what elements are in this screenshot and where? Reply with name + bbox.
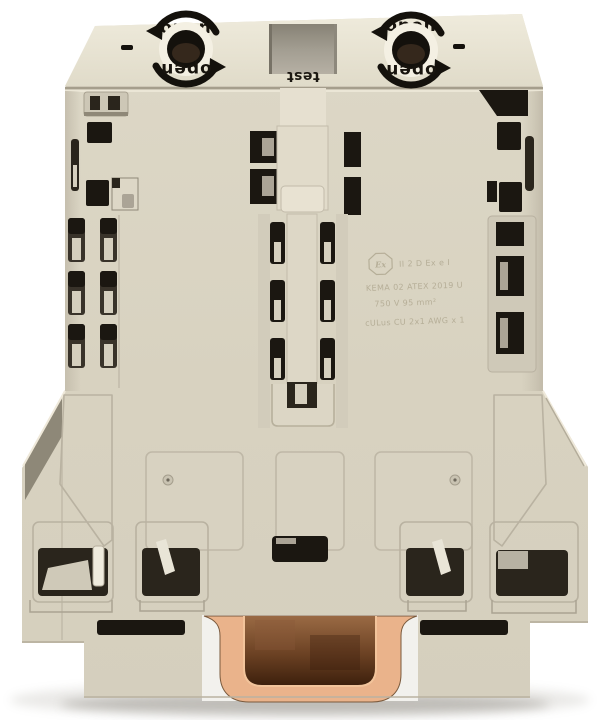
rail-side-channel: [336, 214, 348, 428]
copper-mottle: [255, 620, 295, 650]
open-label-bottom-right: open: [385, 60, 436, 80]
slot-opening: [497, 122, 521, 150]
slot-opening: [499, 182, 522, 212]
open-label-bottom-left: open: [160, 59, 211, 79]
test-label: test: [286, 68, 319, 84]
latch-pocket-notch: [112, 178, 120, 188]
terminal-block-photo: open open open open test: [0, 0, 606, 720]
rail-slot: [344, 132, 361, 167]
ladder-pin: [500, 262, 508, 290]
clip-notch: [108, 96, 120, 110]
latch-pin: [93, 546, 104, 586]
right-slot-ladder: [488, 216, 536, 372]
latch-pin: [122, 194, 134, 208]
side-slot: [525, 136, 534, 191]
rail-slot: [344, 177, 361, 215]
foot-panel: [146, 452, 243, 550]
product-photo: open open open open test: [0, 0, 606, 720]
center-foot-slot-bevel: [276, 538, 296, 544]
foot-slot: [420, 620, 508, 635]
panel-dimple-dot: [453, 478, 456, 481]
foot-slot: [97, 620, 185, 635]
clip-notch: [90, 96, 100, 110]
slot-opening: [487, 181, 497, 202]
ladder-pin: [500, 318, 508, 348]
clip-shadow: [84, 112, 128, 116]
test-recess-edge: [334, 24, 337, 74]
latch-block: [498, 551, 528, 569]
foot-panel: [375, 452, 472, 550]
marking-line-1: II 2 D Ex e I: [399, 258, 450, 269]
panel-dimple-dot: [166, 478, 169, 481]
din-rail-contact: [202, 615, 418, 702]
slot-opening: [86, 180, 109, 206]
slot-opening: [87, 122, 112, 143]
latch-recess: [406, 548, 464, 596]
rail-slot-step: [262, 176, 274, 196]
photo-canvas: open open open open test: [0, 0, 606, 720]
side-slot-pin: [73, 165, 77, 187]
foot-panel: [276, 452, 344, 550]
rail-end-pin: [295, 384, 307, 404]
rail-block-foot: [281, 186, 324, 212]
atex-ex-symbol: Ex: [374, 259, 386, 269]
screw-alignment-dash: [121, 45, 133, 50]
center-rail: [250, 88, 361, 428]
test-recess-edge: [269, 24, 272, 74]
screw-alignment-dash: [453, 44, 465, 49]
rail-slot-step: [262, 138, 274, 156]
ladder-hole: [496, 222, 524, 246]
rail-side-channel: [258, 214, 270, 428]
test-recess: [269, 24, 337, 74]
copper-mottle: [310, 635, 360, 670]
